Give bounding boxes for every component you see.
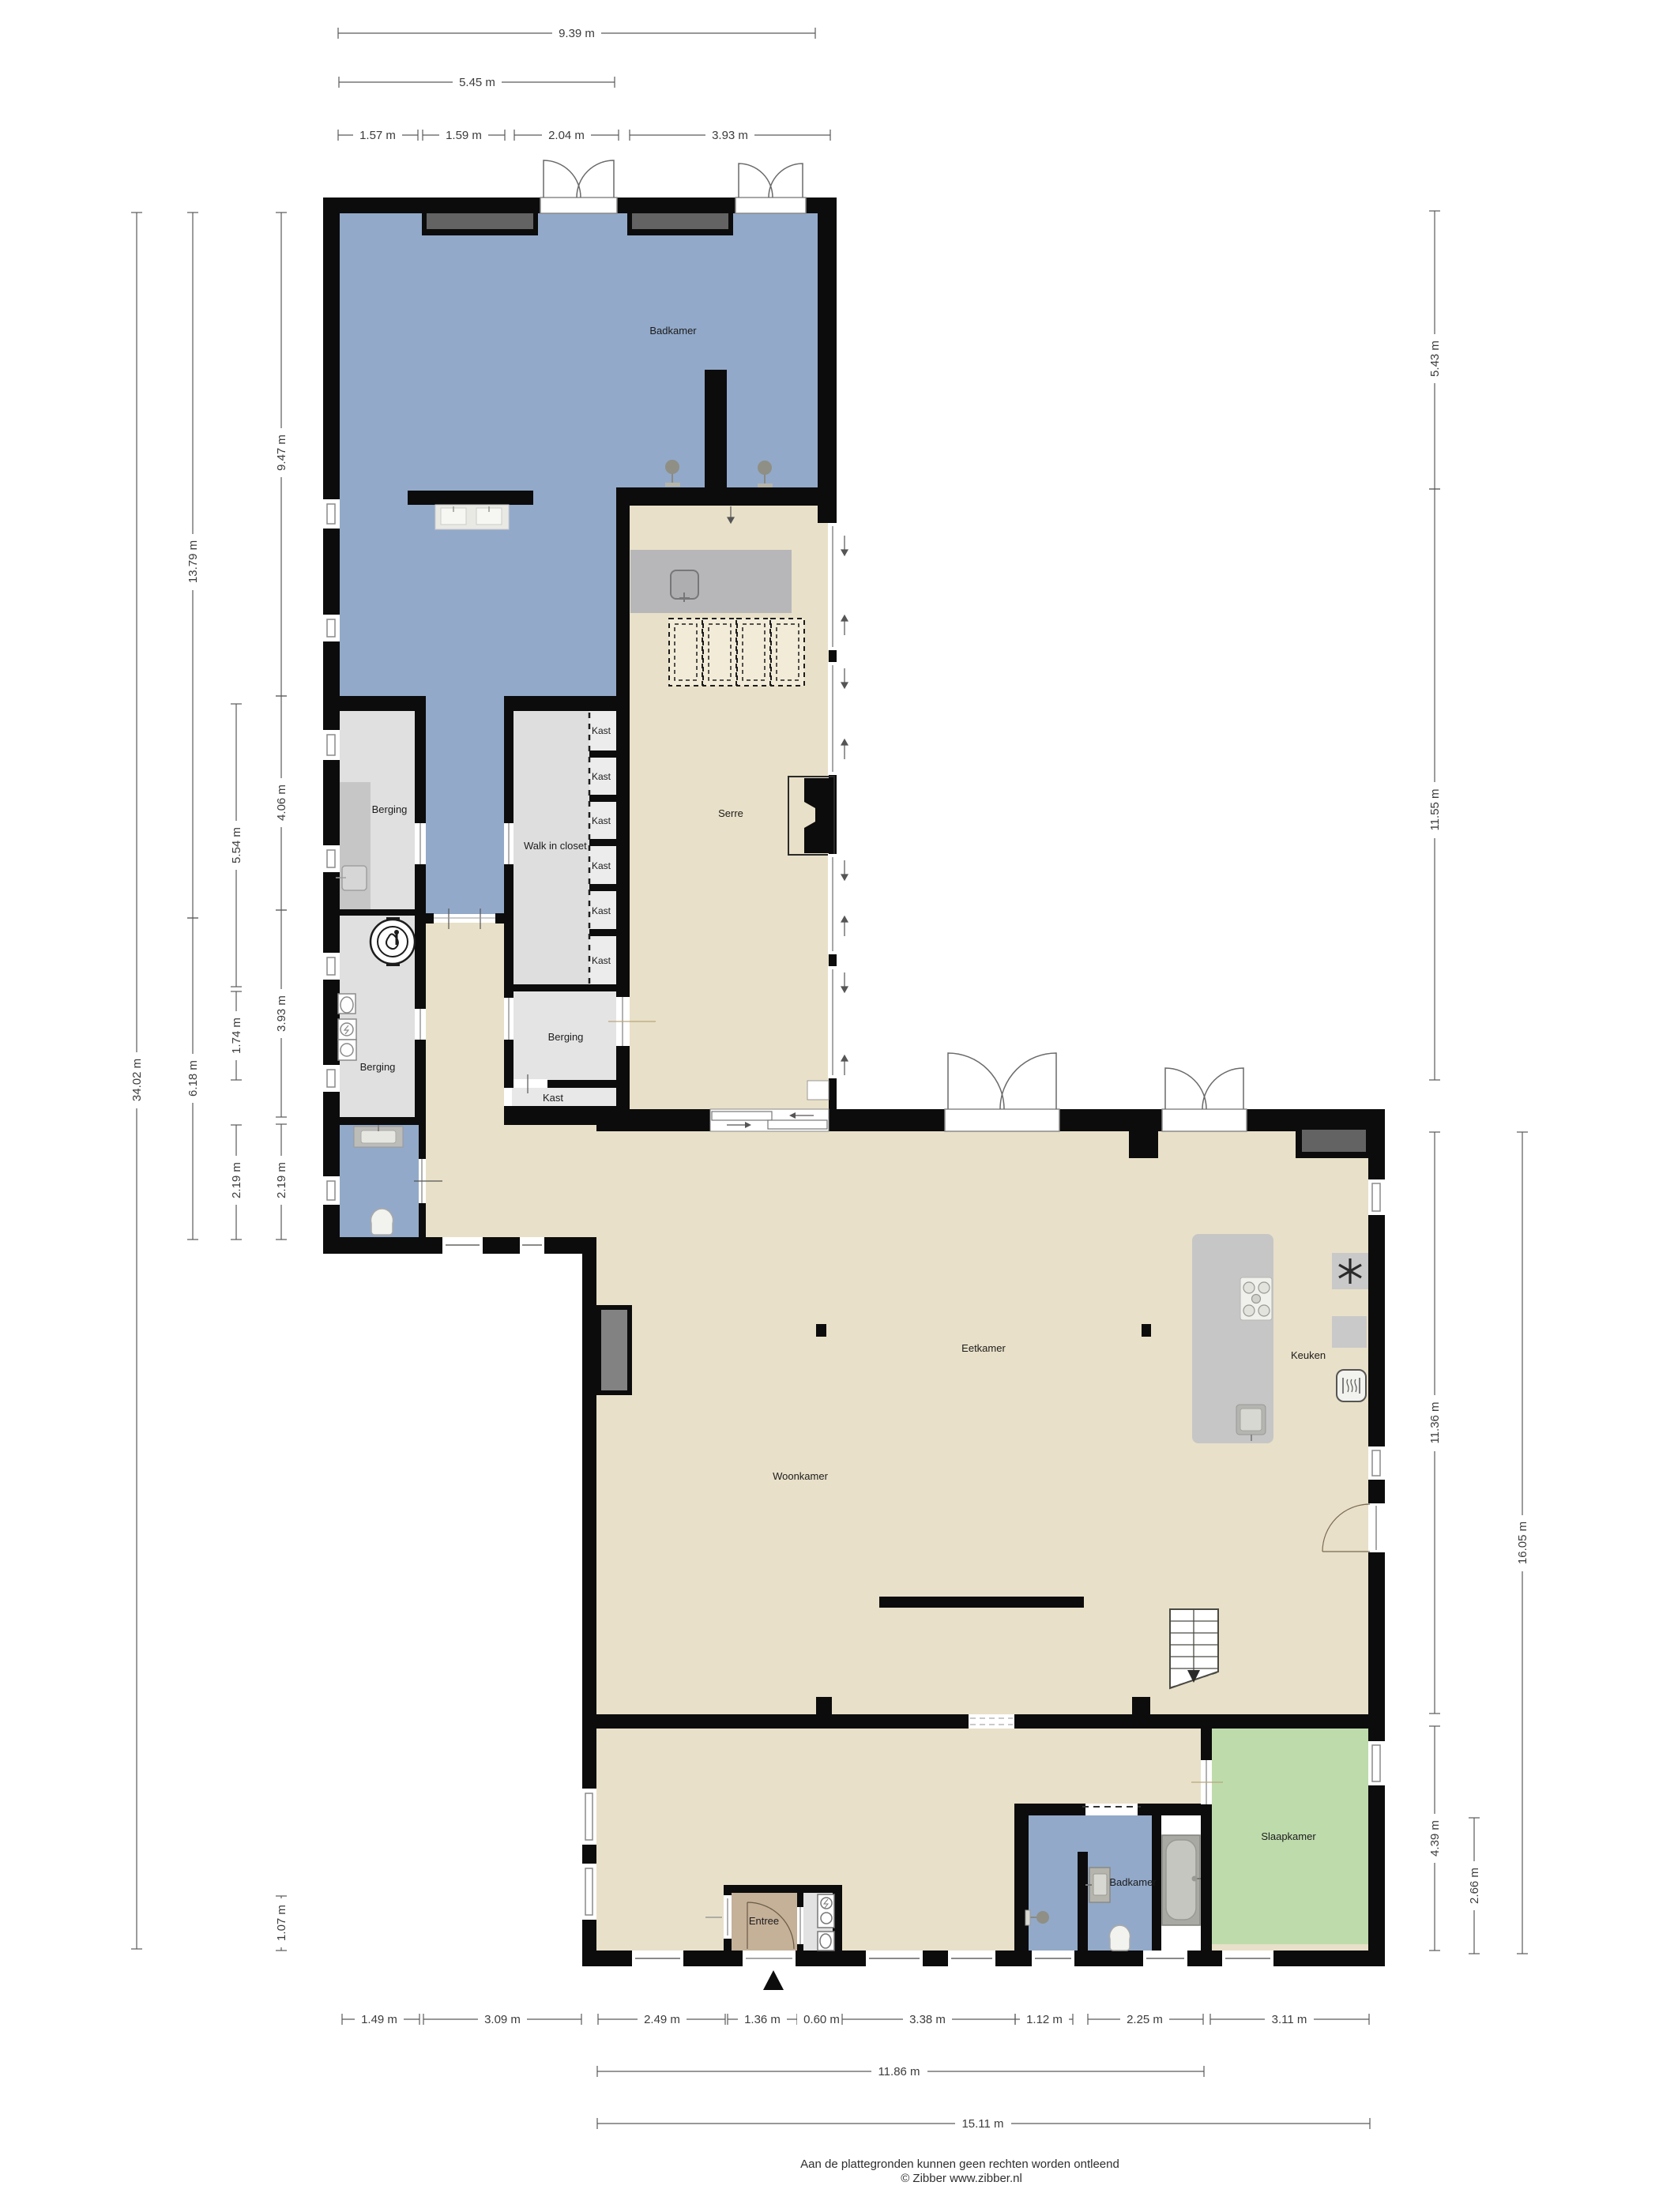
svg-text:Berging: Berging [548, 1031, 584, 1043]
svg-text:2.66 m: 2.66 m [1468, 1868, 1481, 1904]
svg-text:1.07 m: 1.07 m [275, 1905, 288, 1941]
svg-text:5.45 m: 5.45 m [459, 76, 495, 89]
svg-text:Badkamer: Badkamer [1109, 1876, 1157, 1888]
svg-text:1.36 m: 1.36 m [744, 2013, 781, 2026]
svg-text:Berging: Berging [372, 803, 408, 815]
svg-text:2.04 m: 2.04 m [548, 129, 585, 142]
svg-text:6.18 m: 6.18 m [186, 1060, 200, 1097]
svg-text:1.59 m: 1.59 m [446, 129, 482, 142]
svg-text:Kast: Kast [592, 860, 611, 871]
svg-text:© Zibber www.zibber.nl: © Zibber www.zibber.nl [901, 2172, 1022, 2185]
svg-text:4.39 m: 4.39 m [1428, 1820, 1442, 1856]
svg-text:15.11 m: 15.11 m [961, 2117, 1003, 2131]
svg-text:11.86 m: 11.86 m [878, 2065, 920, 2078]
svg-text:Kast: Kast [592, 815, 611, 826]
svg-text:11.36 m: 11.36 m [1428, 1401, 1442, 1443]
svg-text:Kast: Kast [592, 771, 611, 782]
svg-text:Serre: Serre [718, 807, 743, 819]
svg-text:2.19 m: 2.19 m [275, 1162, 288, 1198]
svg-text:Badkamer: Badkamer [649, 325, 697, 337]
svg-text:Keuken: Keuken [1291, 1349, 1326, 1361]
svg-text:3.93 m: 3.93 m [712, 129, 748, 142]
svg-text:1.49 m: 1.49 m [361, 2013, 397, 2026]
svg-text:5.54 m: 5.54 m [230, 827, 243, 863]
svg-text:Woonkamer: Woonkamer [773, 1470, 829, 1482]
svg-text:Kast: Kast [592, 955, 611, 966]
svg-text:9.39 m: 9.39 m [559, 27, 595, 40]
svg-text:3.93 m: 3.93 m [275, 995, 288, 1032]
svg-text:Aan de plattegronden kunnen ge: Aan de plattegronden kunnen geen rechten… [800, 2157, 1119, 2171]
svg-text:11.55 m: 11.55 m [1428, 788, 1442, 830]
svg-text:13.79 m: 13.79 m [186, 540, 200, 583]
svg-text:4.06 m: 4.06 m [275, 784, 288, 821]
svg-text:5.43 m: 5.43 m [1428, 340, 1442, 377]
svg-text:16.05 m: 16.05 m [1516, 1522, 1529, 1564]
svg-text:1.57 m: 1.57 m [359, 129, 396, 142]
svg-text:3.09 m: 3.09 m [484, 2013, 521, 2026]
svg-text:2.49 m: 2.49 m [644, 2013, 680, 2026]
svg-text:1.12 m: 1.12 m [1026, 2013, 1063, 2026]
svg-text:34.02 m: 34.02 m [130, 1059, 144, 1101]
svg-text:Kast: Kast [543, 1092, 563, 1104]
svg-text:9.47 m: 9.47 m [275, 434, 288, 471]
svg-text:Entree: Entree [749, 1915, 779, 1927]
svg-text:3.11 m: 3.11 m [1272, 2013, 1307, 2026]
svg-text:Berging: Berging [360, 1061, 396, 1073]
svg-text:Slaapkamer: Slaapkamer [1261, 1830, 1316, 1842]
svg-text:Eetkamer: Eetkamer [961, 1342, 1006, 1354]
svg-text:Walk in closet: Walk in closet [524, 840, 587, 852]
svg-text:Kast: Kast [592, 905, 611, 916]
svg-text:3.38 m: 3.38 m [909, 2013, 946, 2026]
svg-text:0.60 m: 0.60 m [803, 2013, 840, 2026]
svg-text:Kast: Kast [592, 725, 611, 736]
svg-text:1.74 m: 1.74 m [230, 1018, 243, 1054]
svg-text:2.19 m: 2.19 m [230, 1162, 243, 1198]
svg-text:2.25 m: 2.25 m [1127, 2013, 1163, 2026]
